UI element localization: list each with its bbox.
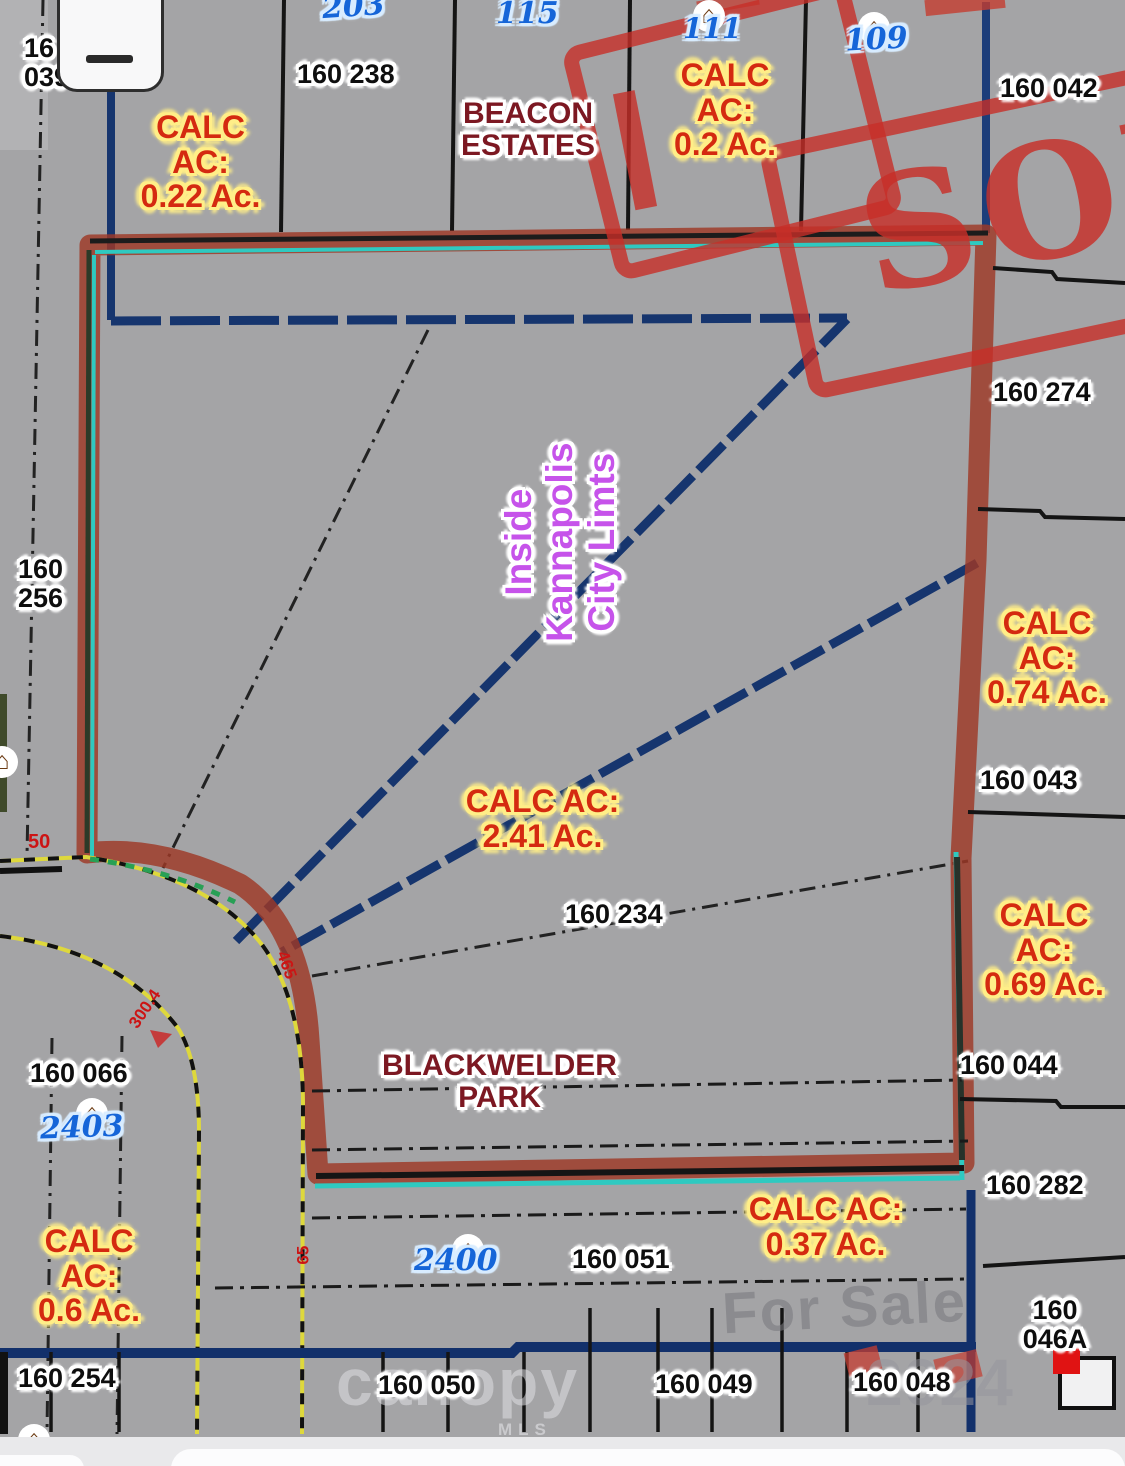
lot-line (978, 509, 1125, 519)
calc-acreage-label: CALC AC: 0.6 Ac. (18, 1224, 160, 1328)
parcel-label-160-043: 160 043 (980, 766, 1078, 795)
calc-acreage-label: CALC AC: 2.41 Ac. (445, 784, 640, 853)
parcel-label-160-044: 160 044 (960, 1051, 1058, 1080)
parcel-label-160-046A: 160 046A (1005, 1296, 1105, 1354)
parcel-label-160-066: 160 066 (30, 1059, 128, 1088)
dimension-label-65: 65 (294, 1246, 312, 1265)
parcel-label-160-274: 160 274 (993, 378, 1091, 407)
stamp-fragment (150, 1030, 172, 1048)
street-number-2403: 2403 (39, 1111, 124, 1146)
park-label-blackwelder: BLACKWELDER PARK (362, 1050, 637, 1115)
parcel-label-160-042: 160 042 (1000, 74, 1098, 103)
parcel-label-160-282: 160 282 (986, 1171, 1084, 1200)
subdivision-label-beacon-estates: BEACON ESTATES (448, 98, 608, 163)
map-edge-fragment (0, 1352, 8, 1434)
city-limit-line (282, 563, 977, 952)
bottom-bar (0, 1437, 1125, 1466)
dimension-label-50: 50 (28, 832, 50, 854)
parcel-outline-teal (92, 255, 94, 856)
street-number-115: 115 (496, 0, 559, 30)
parcel-label-160-051: 160 051 (572, 1245, 670, 1274)
parcel-label-160-049: 160 049 (655, 1370, 753, 1399)
city-limits-label: Inside Kannapolis City Limts (498, 412, 622, 672)
lot-line (27, 0, 43, 856)
lot-line (312, 1141, 968, 1150)
road-edge (0, 936, 199, 1434)
parcel-label-160-234: 160 234 (565, 900, 663, 929)
calc-acreage-label: CALC AC: 0.2 Ac. (655, 58, 795, 162)
lot-line (281, 0, 284, 232)
stamp-fragment (924, 0, 1005, 16)
street-number-109: 109 (844, 22, 908, 58)
parcel-label-160-254: 160 254 (18, 1364, 116, 1393)
bottom-sheet[interactable] (171, 1449, 1125, 1466)
bottom-sheet-side[interactable] (0, 1455, 84, 1466)
lot-line (960, 1099, 1125, 1107)
lot-line (968, 812, 1125, 817)
street-number-203: 203 (321, 0, 386, 26)
calc-acreage-label: CALC AC: 0.37 Ac. (728, 1192, 923, 1261)
city-limit-line (111, 318, 847, 321)
road-edge (0, 869, 62, 871)
map-screenshot: SOLD For Sale canopy 2024 MLS ⌂ ⌂ ⌂ ⌂ ⌂ … (0, 0, 1125, 1466)
street-number-2400: 2400 (414, 1245, 498, 1277)
parcel-label-160-256: 160 256 (18, 555, 63, 613)
parcel-outline-dark (87, 250, 89, 853)
calc-acreage-label: CALC AC: 0.22 Ac. (128, 110, 273, 214)
sold-stamp-letter (613, 90, 657, 210)
minus-icon (86, 55, 133, 63)
calc-acreage-label: CALC AC: 0.74 Ac. (972, 606, 1122, 710)
parcel-label-160-048: 160 048 (853, 1368, 951, 1397)
parcel-label-160-050: 160 050 (378, 1371, 476, 1400)
for-sale-watermark: For Sale (720, 1268, 968, 1348)
zoom-out-button[interactable] (57, 0, 164, 92)
road-edge (0, 936, 199, 1434)
calc-acreage-label: CALC AC: 0.69 Ac. (968, 898, 1120, 1002)
lot-line (163, 330, 428, 868)
lot-line (983, 1257, 1125, 1266)
street-number-111: 111 (683, 14, 741, 44)
parcel-label-160-238: 160 238 (297, 60, 395, 89)
